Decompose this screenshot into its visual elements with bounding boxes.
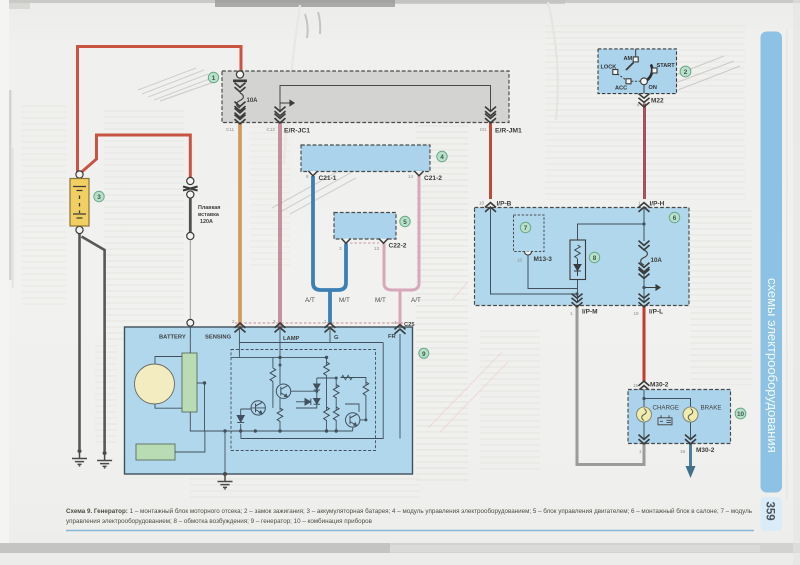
- svg-text:19: 19: [680, 449, 686, 454]
- svg-text:9: 9: [422, 351, 426, 358]
- svg-text:LAMP: LAMP: [283, 336, 300, 342]
- svg-text:Схема 9. Генератор: 1 – монтаж: Схема 9. Генератор: 1 – монтажный блок м…: [66, 508, 752, 515]
- svg-text:1: 1: [570, 311, 573, 316]
- svg-text:7: 7: [524, 225, 528, 232]
- svg-text:10: 10: [737, 411, 745, 418]
- svg-text:10: 10: [479, 201, 485, 206]
- svg-text:3: 3: [339, 246, 342, 251]
- svg-text:1: 1: [212, 75, 216, 82]
- svg-text:6: 6: [673, 215, 677, 222]
- svg-text:4: 4: [394, 320, 397, 325]
- svg-text:1: 1: [639, 449, 642, 454]
- svg-text:14: 14: [408, 174, 414, 179]
- svg-text:15: 15: [633, 383, 639, 388]
- svg-text:10: 10: [517, 258, 523, 263]
- svg-text:схемы электрооборудования: схемы электрооборудования: [765, 278, 780, 453]
- svg-text:1: 1: [324, 319, 327, 324]
- svg-text:120А: 120А: [200, 219, 213, 225]
- svg-text:C25: C25: [404, 322, 415, 328]
- svg-text:E/R-JC1: E/R-JC1: [284, 128, 310, 135]
- svg-text:SENSING: SENSING: [205, 335, 232, 341]
- svg-text:2: 2: [232, 319, 235, 324]
- svg-text:2: 2: [684, 69, 688, 76]
- svg-text:10A: 10A: [651, 257, 663, 264]
- svg-text:A/T: A/T: [411, 297, 421, 304]
- svg-text:M30-2: M30-2: [696, 447, 715, 454]
- svg-text:359: 359: [764, 502, 776, 521]
- svg-text:8: 8: [593, 255, 597, 262]
- svg-text:M/T: M/T: [375, 297, 386, 304]
- svg-text:Плавкая: Плавкая: [198, 205, 220, 211]
- svg-text:I31: I31: [480, 127, 487, 132]
- svg-text:I/P-L: I/P-L: [649, 309, 663, 316]
- svg-text:ON: ON: [649, 85, 657, 91]
- svg-text:8: 8: [306, 174, 309, 179]
- svg-text:C22-2: C22-2: [389, 243, 407, 250]
- svg-text:13: 13: [374, 246, 380, 251]
- svg-text:BATTERY: BATTERY: [159, 335, 186, 341]
- svg-text:19: 19: [634, 311, 640, 316]
- svg-text:CHARGE: CHARGE: [653, 405, 679, 412]
- svg-text:I/P-M: I/P-M: [582, 309, 598, 316]
- svg-text:10A: 10A: [247, 98, 259, 104]
- svg-text:4: 4: [637, 103, 640, 108]
- svg-text:управления электрооборудование: управления электрооборудованием; 8 – обм…: [66, 518, 373, 525]
- svg-text:C12: C12: [267, 127, 276, 132]
- svg-text:LOCK: LOCK: [601, 64, 617, 70]
- svg-text:C11: C11: [226, 127, 235, 132]
- svg-text:E/R-JM1: E/R-JM1: [495, 128, 522, 135]
- svg-text:3: 3: [97, 194, 101, 201]
- svg-text:M30-2: M30-2: [650, 382, 669, 389]
- svg-text:M22: M22: [651, 98, 664, 105]
- svg-text:BRAKE: BRAKE: [701, 405, 722, 412]
- svg-text:C21-2: C21-2: [424, 175, 442, 182]
- svg-text:I/P-H: I/P-H: [650, 201, 665, 208]
- svg-text:G: G: [334, 335, 339, 341]
- svg-text:C21-1: C21-1: [319, 175, 337, 182]
- svg-text:START: START: [657, 63, 676, 69]
- svg-text:1: 1: [638, 201, 641, 206]
- svg-text:AM: AM: [624, 56, 633, 62]
- svg-text:5: 5: [403, 219, 407, 226]
- svg-text:FR: FR: [388, 334, 397, 340]
- svg-text:M13-3: M13-3: [534, 256, 553, 263]
- svg-text:I/P-B: I/P-B: [497, 201, 512, 208]
- svg-text:M/T: M/T: [339, 297, 350, 304]
- svg-text:ACC: ACC: [615, 86, 627, 92]
- svg-text:A/T: A/T: [305, 297, 315, 304]
- svg-text:вставка: вставка: [198, 212, 220, 218]
- svg-text:4: 4: [440, 154, 444, 161]
- svg-text:3: 3: [273, 319, 276, 324]
